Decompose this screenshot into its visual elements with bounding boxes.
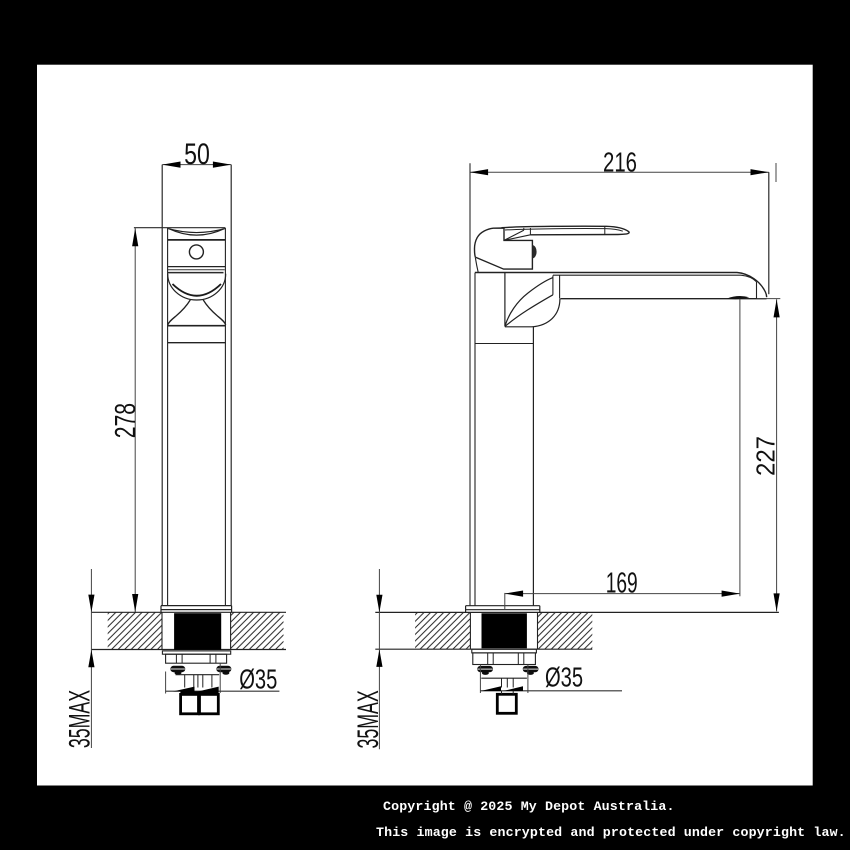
svg-text:Copyright @ 2025 My Depot Aust: Copyright @ 2025 My Depot Australia. — [383, 799, 675, 814]
svg-text:Ø35: Ø35 — [239, 664, 277, 695]
svg-text:This image is encrypted and pr: This image is encrypted and protected un… — [376, 825, 846, 840]
svg-text:216: 216 — [603, 148, 637, 179]
svg-text:35MAX: 35MAX — [352, 690, 385, 748]
svg-text:278: 278 — [110, 403, 142, 438]
svg-text:169: 169 — [606, 568, 638, 600]
svg-text:227: 227 — [753, 436, 781, 476]
svg-text:50: 50 — [184, 137, 210, 170]
svg-text:35MAX: 35MAX — [64, 690, 97, 748]
svg-text:Ø35: Ø35 — [545, 662, 583, 693]
